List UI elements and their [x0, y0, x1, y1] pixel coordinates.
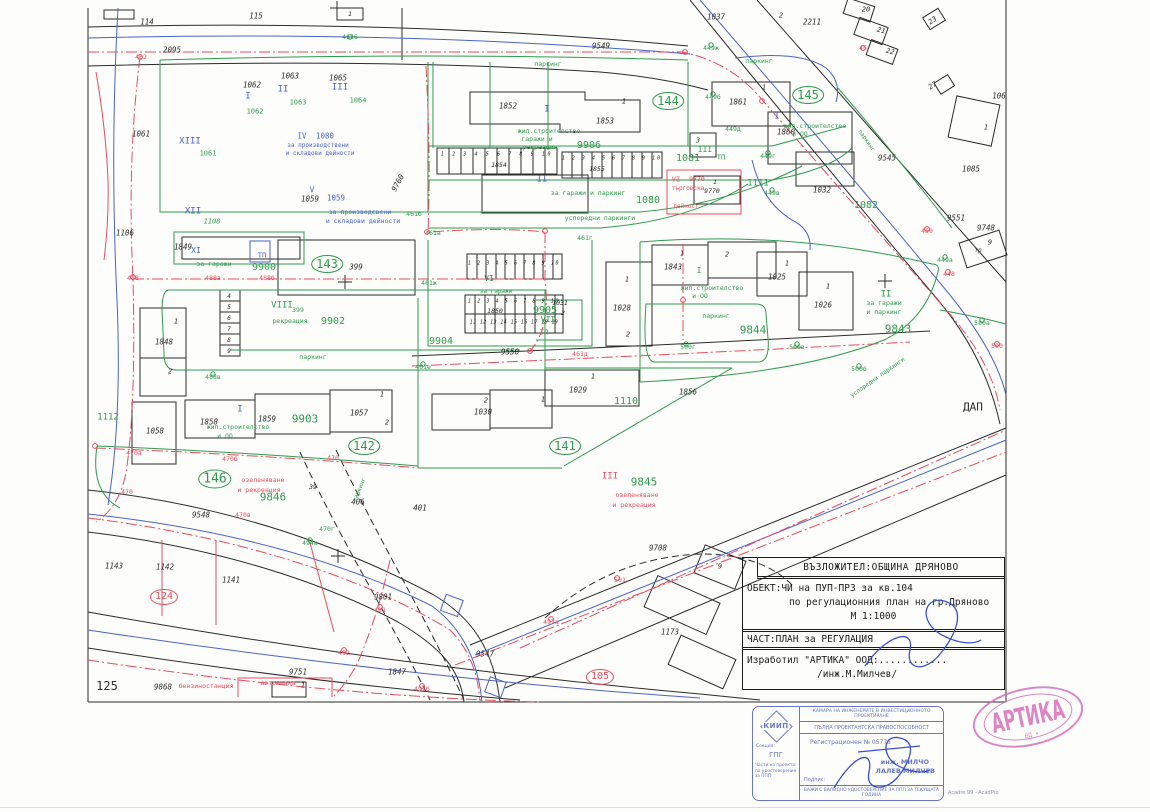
map-label: успоредни паркинги [850, 357, 907, 399]
map-label: 9 [227, 349, 231, 355]
map-label: 9770 [689, 176, 705, 183]
map-label: 9845 [631, 477, 658, 488]
map-label: 1110 [614, 397, 638, 407]
map-label: 106 [992, 92, 1006, 100]
map-label: 1852 [499, 102, 517, 110]
map-label: 1062 [247, 109, 264, 116]
map-label: III [698, 146, 712, 154]
map-label: 470а [126, 450, 142, 457]
map-label: 1 [174, 319, 178, 326]
map-label: 1080 [636, 196, 660, 206]
map-label: 1141 [222, 576, 240, 584]
map-label: 449ж [703, 45, 719, 52]
map-label: 470г [319, 526, 335, 533]
scan-artifact-line [0, 807, 1150, 808]
map-label: 1029 [569, 386, 587, 394]
map-label: 145 [792, 86, 824, 104]
map-label: II [537, 176, 548, 185]
map-label: и паркинг [866, 309, 901, 316]
map-label: 2 [385, 420, 389, 427]
plot-footer-note: Acadre 99 - AcadPro [948, 790, 999, 796]
map-label: 1112 [97, 414, 119, 423]
map-label: 9903 [292, 414, 319, 425]
map-label: 4626 [342, 34, 358, 41]
map-label: 1 [348, 11, 352, 18]
map-label: 500а [974, 320, 990, 327]
map-label: 1059 [301, 195, 319, 203]
map-label: VIII [271, 302, 293, 311]
map-label: 450 [921, 228, 933, 235]
map-label: 449д [725, 126, 741, 133]
map-label: 9 [988, 240, 992, 247]
kiip-logo-icon: КИИП [761, 711, 791, 741]
map-label: I [697, 267, 702, 275]
map-label: 1 2 3 4 5 6 7 8 9 10 [468, 262, 560, 267]
map-label: 114 [140, 18, 154, 26]
map-label: 449а [937, 257, 953, 264]
map-label: 143 [311, 255, 343, 273]
map-label: 1 [826, 284, 830, 291]
map-label: 1064 [350, 98, 367, 105]
map-label: 9545 [878, 154, 896, 162]
map-label: 9904 [429, 337, 453, 347]
map-label: 1859 [258, 415, 276, 423]
map-label: 1061 [132, 130, 150, 138]
map-label: жил.строителство [207, 424, 270, 431]
map-label: 461ж [421, 280, 437, 287]
map-label: 1065 [329, 74, 347, 82]
map-label: XI [191, 247, 201, 255]
map-label: 1849 [174, 243, 192, 251]
map-label: 1108 [204, 219, 221, 226]
map-label: паркинг [299, 354, 326, 361]
map-label: за гаражи и паркинг [551, 190, 625, 197]
map-label: 1031 [552, 300, 568, 307]
map-label: и складови дейности [286, 151, 355, 157]
map-label: 1063 [290, 100, 307, 107]
map-label: 9902 [321, 317, 345, 327]
project-parts: Части на проекта: по удостоверение за ПП… [753, 763, 798, 780]
map-label: 1082 [854, 201, 878, 211]
map-label: 9801 [374, 593, 392, 601]
title-block-client: ВЪЗЛОЖИТЕЛ:ОБЩИНА ДРЯНОВО [757, 558, 1004, 579]
map-label: и рекреация [612, 502, 655, 509]
map-label: 3 [696, 138, 700, 145]
map-label: 1 2 3 4 5 6 7 8 9 10 [468, 300, 560, 305]
map-labels: 114115209546246269549449ж103722211202122… [0, 0, 1150, 812]
map-label: 1142 [156, 563, 174, 571]
map-label: VI [484, 275, 494, 283]
map-label: 488 [127, 275, 139, 282]
map-label: 9751 [289, 668, 307, 676]
map-label: 1854 [491, 162, 507, 169]
map-label: 141 [549, 437, 581, 455]
map-label: успоредни паркинги [565, 215, 635, 222]
map-label: 9844 [740, 325, 767, 336]
map-label: 1028 [613, 304, 631, 312]
map-label: 6 [227, 316, 231, 322]
map-label: 1 [713, 179, 717, 186]
map-label: 1025 [768, 273, 786, 281]
map-label: 146 [198, 470, 231, 489]
map-label: I [245, 93, 250, 102]
map-label: 501 [614, 577, 626, 584]
map-label: 1062 [243, 81, 261, 89]
map-label: 21 [876, 27, 886, 36]
map-label: 448 [943, 271, 955, 278]
map-label: 1850 [487, 308, 503, 315]
map-label: 105 [586, 669, 614, 685]
map-label: 461а [425, 230, 441, 237]
map-label: бензиностанция [179, 683, 234, 690]
map-label: и складови дейности [326, 218, 400, 225]
map-label: 1173 [661, 628, 679, 636]
map-label: 2 [626, 332, 630, 339]
map-label: автомивка [260, 680, 295, 687]
map-label: 401 [413, 504, 427, 512]
map-label: 4 [227, 294, 231, 300]
map-label: 9550 [501, 348, 519, 356]
map-label: 142 [348, 437, 380, 455]
map-label: 1026 [814, 301, 832, 309]
map-label: 1 [625, 277, 629, 284]
map-label: 1855 [589, 166, 605, 173]
map-label: VI [672, 177, 680, 184]
map-label: 1081 [676, 154, 700, 164]
kiip-stamp-left-column: КИИП Секция: ГПГ Части на проекта: по уд… [753, 707, 800, 800]
map-label: XII [185, 208, 201, 217]
signature-title-block [855, 588, 985, 680]
map-label: 144 [652, 92, 684, 110]
map-label: 9708 [649, 544, 667, 552]
map-label: 9760 [390, 173, 405, 192]
map-label: 1032 [813, 186, 831, 194]
map-label: 461е [415, 364, 431, 371]
map-label: 399 [292, 307, 304, 314]
map-label: 9549 [592, 42, 610, 50]
map-label: V [310, 186, 315, 194]
map-label: 9551 [947, 214, 965, 222]
map-label: 1856 [679, 388, 697, 396]
map-label: 1057 [350, 409, 368, 417]
map-label: 1 [762, 85, 766, 92]
map-label: 1063 [281, 72, 299, 80]
map-label: 1061 [200, 151, 217, 158]
map-label: търговска [672, 186, 705, 192]
map-label: за производсвени [329, 209, 392, 216]
map-label: II [278, 86, 289, 95]
map-label: 1143 [105, 562, 123, 570]
map-label: 20 [862, 7, 870, 14]
map-label: и ОО [217, 433, 233, 440]
map-label: 497б [414, 686, 430, 693]
map-label: 488а [205, 275, 221, 282]
map-label: 1 [591, 374, 595, 381]
map-label: 1 [622, 99, 626, 106]
map-label: 2 [484, 398, 488, 405]
map-label: 7 [227, 327, 231, 333]
map-label: 1848 [155, 338, 173, 346]
map-label: тр [974, 248, 981, 254]
map-label: I [544, 106, 549, 115]
map-label: 1 [984, 125, 988, 132]
map-label: 1059 [327, 194, 345, 202]
map-label: 492 [338, 650, 350, 657]
map-label: 470б [222, 456, 238, 463]
map-label: 9 [718, 564, 722, 571]
map-label: 9846 [260, 492, 287, 503]
section-value: ГПГ [769, 751, 783, 759]
map-label: 1847 [388, 668, 406, 676]
map-label: 462 [135, 54, 147, 61]
map-label: 1 2 3 4 5 6 7 8 9 10 [562, 157, 662, 162]
map-label: 488б [259, 275, 275, 282]
map-label: дейност [673, 204, 698, 210]
map-label: паркинг [745, 58, 772, 65]
section-label: Секция: [753, 744, 775, 749]
map-label: III [602, 473, 618, 482]
artika-subtext: ВД • [1024, 730, 1040, 740]
map-label: 9906 [577, 141, 601, 151]
map-label: рекреация [522, 144, 557, 151]
map-label: паркинг [856, 129, 875, 153]
map-label: III [332, 84, 348, 93]
map-label: 1853 [596, 117, 614, 125]
map-label: 1037 [707, 13, 725, 21]
map-label: жил.строителство [784, 123, 847, 130]
map-label: 449г [760, 153, 776, 160]
map-label: 2 [168, 369, 172, 376]
map-label: жил.строителство [518, 128, 581, 135]
map-label: 22 [885, 48, 895, 57]
map-label: 1080 [316, 132, 334, 140]
map-label: 1111 [747, 180, 769, 189]
map-label: 8 [227, 338, 231, 344]
map-label: 39 [309, 484, 317, 491]
map-label: 1 [301, 683, 305, 690]
map-label: 497а [543, 619, 559, 626]
map-label: 461д [572, 351, 588, 358]
map-label: 1 [380, 392, 384, 399]
map-label: 1 2 3 4 5 6 7 8 9 10 [441, 153, 553, 158]
map-label: 9748 [977, 224, 995, 232]
map-label: 470 [121, 489, 133, 496]
map-label: паркинг [534, 61, 561, 68]
map-label: 2 [779, 13, 783, 20]
map-label: I [774, 113, 779, 122]
map-label: VII [541, 316, 555, 324]
map-label: 124 [150, 589, 178, 605]
map-label: и ОО [792, 131, 808, 138]
map-label: гаражи и [521, 136, 552, 143]
map-label: озеленяване [241, 477, 284, 484]
map-label: 449б [705, 94, 721, 101]
map-label: ДАП [963, 402, 983, 413]
map-label: 2211 [803, 18, 821, 26]
map-label: 1 [541, 397, 545, 404]
map-label: 449в [764, 190, 780, 197]
map-label: 500г [680, 344, 696, 351]
map-label: жил.строителство [681, 285, 744, 292]
signature-label: Подпис: [804, 777, 825, 783]
map-label: 1861 [729, 98, 747, 106]
map-label: 399 [349, 263, 363, 271]
map-label: 1843 [664, 263, 682, 271]
map-label: 461г [577, 235, 593, 242]
map-label: 470в [235, 512, 251, 519]
map-label: 1030 [474, 408, 492, 416]
map-label: 500б [851, 366, 867, 373]
map-label: 115 [249, 12, 263, 20]
map-label: и ОО [692, 293, 708, 300]
map-label: 2 [725, 252, 729, 259]
scanned-regulation-plan-sheet: 114115209546246269549449ж103722211202122… [0, 0, 1150, 812]
map-label: 125 [96, 680, 118, 692]
map-label: 491 [374, 607, 386, 614]
map-label: ТП [540, 330, 548, 337]
map-label: XIII [179, 138, 201, 147]
map-label: озеленяване [615, 492, 658, 499]
map-label: 1085 [962, 165, 980, 173]
map-label: 9548 [192, 511, 210, 519]
map-label: 2095 [163, 46, 181, 54]
map-label: 9547 [476, 650, 494, 658]
map-label: 5 [227, 305, 231, 311]
map-label: 45 [859, 45, 867, 52]
map-label: за гаражи [866, 300, 901, 307]
map-label: 500в [789, 344, 805, 351]
map-label: 500 [991, 343, 1003, 350]
map-label: 1058 [146, 427, 164, 435]
map-label: 9900 [252, 263, 276, 273]
map-label: за гаражи [196, 261, 231, 268]
map-label: 2 [561, 310, 565, 317]
map-label: ТП [717, 155, 725, 162]
map-label: 494а [302, 540, 318, 547]
map-label: IV [297, 132, 306, 140]
map-label: 27 [928, 81, 939, 92]
map-label: за производствени [287, 143, 348, 149]
map-label: 9770 [704, 188, 720, 195]
map-label: паркинг [702, 313, 729, 320]
map-label: 1 [680, 251, 684, 258]
map-label: 488в [205, 374, 221, 381]
map-label: рекреация [272, 318, 307, 325]
map-label: 461б [406, 211, 422, 218]
map-label: ТП [258, 253, 266, 260]
signature-stamp [828, 730, 940, 798]
map-label: 1106 [116, 229, 134, 237]
map-label: I [237, 406, 242, 415]
map-label: 9843 [885, 324, 912, 335]
map-label: 470 [327, 455, 339, 462]
map-label: 23 [928, 16, 939, 27]
map-label: за гаражи [480, 289, 513, 295]
map-label: 9868 [154, 683, 172, 691]
stamp-org-line: КАМАРА НА ИНЖЕНЕРИТЕ В ИНВЕСТИЦИОННОТО П… [800, 707, 943, 722]
map-label: 1 [785, 261, 789, 268]
